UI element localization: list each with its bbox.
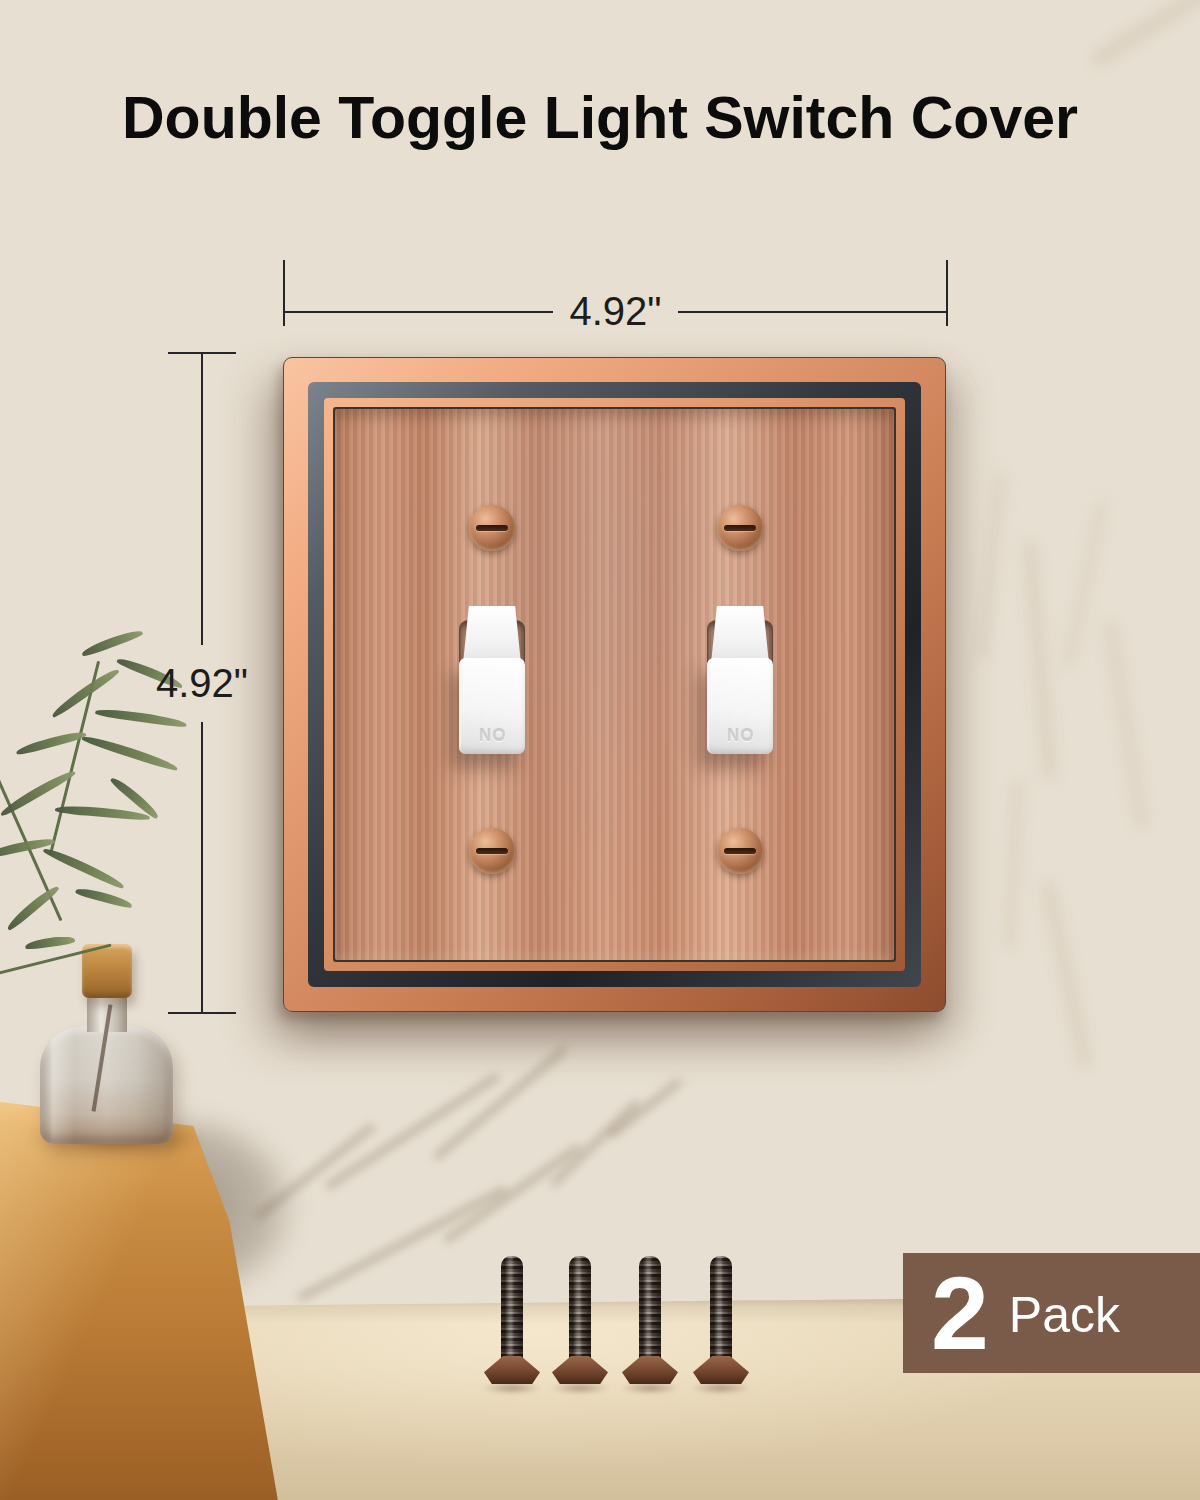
glass-bottle <box>40 1026 173 1144</box>
plant-leaf <box>0 836 55 859</box>
toggle-switch[interactable]: ON <box>457 606 527 756</box>
pack-count-badge: 2 Pack <box>903 1253 1200 1373</box>
plant-leaf <box>75 886 133 910</box>
toggle-on-label: ON <box>726 724 754 744</box>
mounting-screw <box>691 1256 751 1396</box>
mounting-screw <box>620 1256 680 1396</box>
width-dimension-label: 4.92" <box>553 289 677 334</box>
plant-leaf <box>55 804 150 821</box>
height-dimension: 4.92" <box>168 352 236 1014</box>
screw-head <box>484 1356 540 1384</box>
plate-brushed-field <box>335 409 894 960</box>
dimension-line <box>201 722 203 1013</box>
screw-thread <box>639 1256 661 1358</box>
plant-leaf <box>25 935 76 951</box>
plate-screw <box>469 505 515 551</box>
plate-screw <box>717 505 763 551</box>
toggle-paddle-top <box>463 606 521 664</box>
dimension-line <box>678 311 946 313</box>
dimension-tick <box>168 1012 236 1014</box>
toggle-switch[interactable]: ON <box>705 606 775 756</box>
dimension-line <box>285 311 553 313</box>
plant-leaf <box>80 627 143 657</box>
toggle-paddle-top <box>711 606 769 664</box>
toggle-paddle-face: ON <box>707 658 773 754</box>
toggle-on-label: ON <box>478 724 506 744</box>
page-title: Double Toggle Light Switch Cover <box>0 84 1200 152</box>
screw-thread <box>569 1256 591 1358</box>
screw-thread <box>501 1256 523 1358</box>
plate-screw <box>469 828 515 874</box>
pack-count: 2 <box>931 1261 987 1365</box>
screw-head <box>693 1356 749 1384</box>
mounting-screw <box>482 1256 542 1396</box>
plant-leaf <box>42 845 126 890</box>
mounting-screw <box>550 1256 610 1396</box>
plant-leaf <box>81 733 179 772</box>
plant-leaf <box>5 883 61 932</box>
dimension-line <box>201 354 203 645</box>
dimension-tick <box>946 260 948 326</box>
pack-label: Pack <box>1009 1286 1120 1344</box>
width-dimension: 4.92" <box>283 260 948 326</box>
screw-thread <box>710 1256 732 1358</box>
product-image: Double Toggle Light Switch Cover 4.92" 4… <box>0 0 1200 1500</box>
screw-head <box>622 1356 678 1384</box>
height-dimension-label: 4.92" <box>156 645 248 722</box>
switch-plate: ON ON <box>283 357 946 1012</box>
plate-screw <box>717 828 763 874</box>
screw-head <box>552 1356 608 1384</box>
toggle-paddle-face: ON <box>459 658 525 754</box>
plant-stem <box>0 944 112 976</box>
